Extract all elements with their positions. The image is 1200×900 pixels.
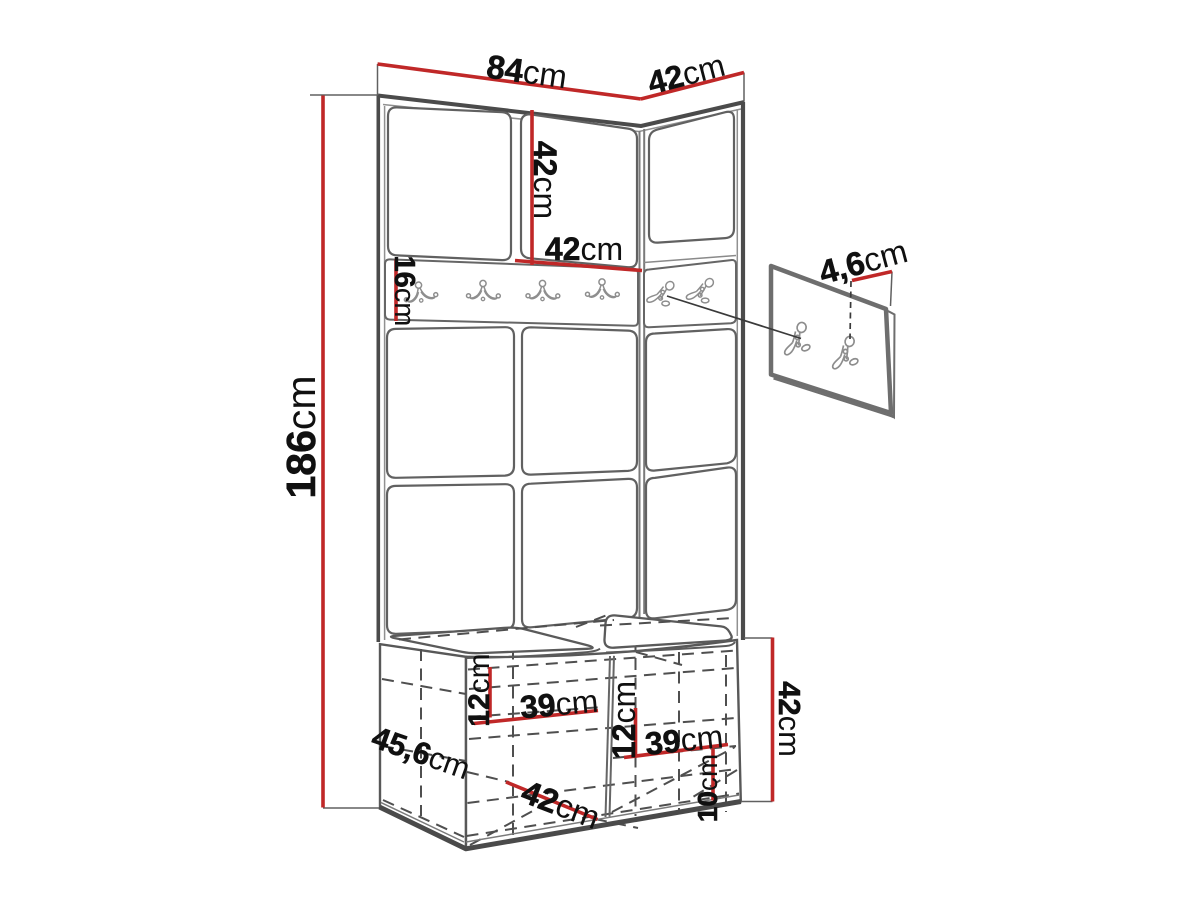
svg-text:42cm: 42cm (545, 231, 623, 267)
svg-text:42cm: 42cm (772, 681, 807, 757)
svg-text:16cm: 16cm (388, 256, 420, 327)
svg-text:12cm: 12cm (606, 681, 642, 759)
svg-text:12cm: 12cm (463, 653, 496, 726)
svg-text:42cm: 42cm (527, 141, 563, 219)
svg-text:10cm: 10cm (692, 754, 723, 822)
svg-text:39cm: 39cm (519, 683, 600, 726)
svg-text:186cm: 186cm (278, 375, 324, 498)
